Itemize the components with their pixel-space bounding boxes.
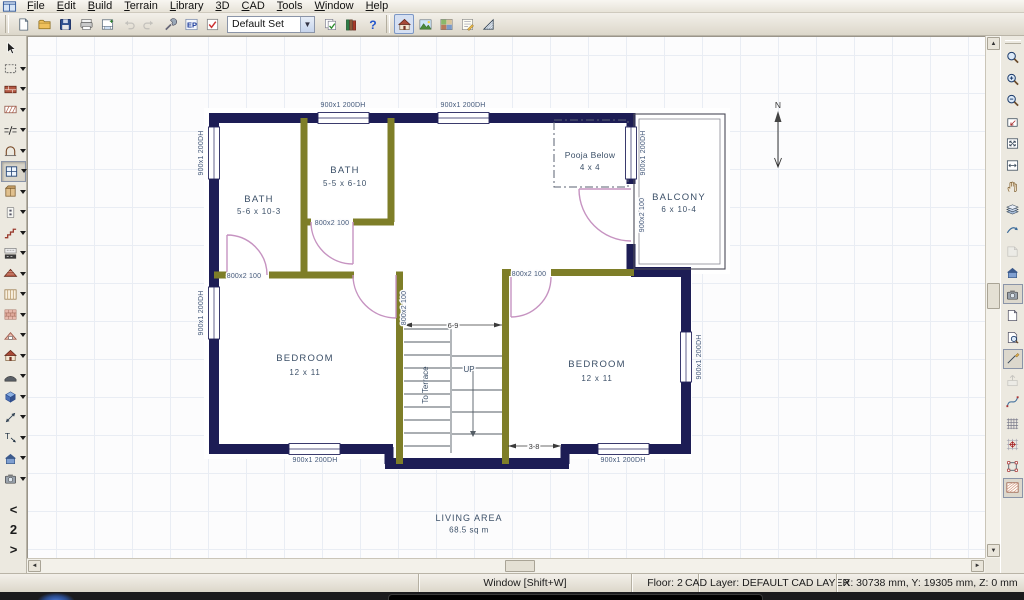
stairs-icon <box>3 225 18 240</box>
swoosh-icon <box>1005 222 1020 237</box>
horizontal-scrollbar[interactable]: ◄ ► <box>27 558 985 573</box>
grid-display-button[interactable] <box>1003 413 1023 433</box>
flyout-arrow-icon[interactable] <box>20 292 26 296</box>
edit-line-button[interactable] <box>1003 349 1023 369</box>
roof-tool[interactable] <box>1 264 26 285</box>
fillwin-icon <box>1005 136 1020 151</box>
svg-text:68.5 sq m: 68.5 sq m <box>449 526 489 535</box>
scroll-right-icon[interactable]: ► <box>971 560 984 572</box>
cursor-coordinates: X: 30738 mm, Y: 19305 mm, Z: 0 mm <box>843 577 1017 589</box>
north-arrow[interactable] <box>775 111 782 167</box>
menu-3d[interactable]: 3D <box>209 0 235 13</box>
drawing-canvas[interactable]: BATH 5-6 x 10-3 BATH 5-5 x 6-10 Pooja Be… <box>27 36 985 558</box>
menu-library[interactable]: Library <box>164 0 210 13</box>
flyout-arrow-icon[interactable] <box>20 374 26 378</box>
viewterrain-icon <box>418 17 433 32</box>
window-icon <box>2 0 17 14</box>
svg-text:BEDROOM: BEDROOM <box>568 359 626 370</box>
open-file-button[interactable] <box>34 14 54 34</box>
layer-display-button[interactable] <box>1003 198 1023 218</box>
new-file-button[interactable] <box>13 14 33 34</box>
swap-views-button[interactable] <box>1003 220 1023 240</box>
undo-icon <box>121 17 136 32</box>
status-bar: Window [Shift+W] Floor: 2 CAD Layer: DEF… <box>0 573 1024 592</box>
electrical-tool[interactable] <box>1 202 26 223</box>
prefcheck-icon <box>205 17 220 32</box>
scroll-up-icon[interactable]: ▲ <box>987 37 1000 50</box>
marquee-select-tool[interactable] <box>1 59 26 80</box>
plancheck-icon <box>100 17 115 32</box>
terrain-view-button[interactable] <box>415 14 435 34</box>
flyout-arrow-icon[interactable] <box>20 231 26 235</box>
svg-text:5-6 x 10-3: 5-6 x 10-3 <box>237 207 281 216</box>
editline-icon <box>1005 351 1020 366</box>
floor-plan-drawing[interactable]: BATH 5-6 x 10-3 BATH 5-5 x 6-10 Pooja Be… <box>1 1 1024 600</box>
system-menu-icon[interactable] <box>2 0 18 12</box>
viewplan-icon <box>397 17 412 32</box>
exterior-wall-tool[interactable] <box>1 79 26 100</box>
svg-text:6 x 10-4: 6 x 10-4 <box>661 205 696 214</box>
dimension-tool[interactable] <box>1 407 26 428</box>
camera-icon <box>3 471 18 486</box>
folder-icon <box>37 17 52 32</box>
svg-text:UP: UP <box>463 365 474 374</box>
svg-text:900x1 200DH: 900x1 200DH <box>600 457 645 464</box>
select-tool[interactable] <box>1 38 26 59</box>
notes-view-button[interactable] <box>457 14 477 34</box>
toolbar-grip[interactable] <box>1005 40 1021 44</box>
svg-text:12 x 11: 12 x 11 <box>289 368 320 377</box>
outlet-icon <box>3 205 18 220</box>
spline-icon <box>1005 394 1020 409</box>
stairs-tool[interactable] <box>1 223 26 244</box>
viewelevation-icon <box>481 17 496 32</box>
dimension-icon <box>3 410 18 425</box>
pan-window-tool[interactable] <box>1003 177 1023 197</box>
svg-text:800x2 100: 800x2 100 <box>315 220 350 227</box>
menu-build[interactable]: Build <box>82 0 118 13</box>
shingles-icon <box>3 307 18 322</box>
flyout-arrow-icon[interactable] <box>20 456 26 460</box>
svg-text:T: T <box>5 431 10 441</box>
magnifier-icon <box>1005 50 1020 65</box>
svg-text:900x2 100: 900x2 100 <box>639 198 646 233</box>
interior-wall-tool[interactable] <box>1 100 26 121</box>
cad-layer-indicator: CAD Layer: DEFAULT CAD LAYER <box>685 577 850 589</box>
menu-window[interactable]: Window <box>308 0 359 13</box>
default-set-combobox[interactable]: Default Set ▼ <box>227 16 315 33</box>
cabinet-tool[interactable] <box>1 182 26 203</box>
gridsnap-icon <box>1005 437 1020 452</box>
dormer-tool[interactable] <box>1 325 26 346</box>
vertical-scroll-thumb[interactable] <box>987 283 1000 309</box>
menu-cad[interactable]: CAD <box>236 0 271 13</box>
current-floor-indicator: 2 <box>3 521 25 538</box>
pan-icon <box>1005 179 1020 194</box>
flyout-arrow-icon[interactable] <box>20 87 26 91</box>
menu-help[interactable]: Help <box>360 0 395 13</box>
flyout-arrow-icon[interactable] <box>20 108 26 112</box>
hatch-tool[interactable] <box>1003 478 1023 498</box>
svg-text:900x1 200DH: 900x1 200DH <box>292 457 337 464</box>
print-button[interactable] <box>76 14 96 34</box>
svg-text:800x2 100: 800x2 100 <box>512 271 547 278</box>
svg-text:800x2 100: 800x2 100 <box>401 291 408 326</box>
svg-text:800x2 100: 800x2 100 <box>227 273 262 280</box>
textarrow-icon: T <box>3 430 18 445</box>
zoomprev-icon <box>1005 115 1020 130</box>
door-tool[interactable] <box>1 141 26 162</box>
svg-text:900x1 200DH: 900x1 200DH <box>696 334 703 379</box>
flyout-arrow-icon[interactable] <box>20 190 26 194</box>
new-window-button[interactable] <box>1003 306 1023 326</box>
tool-hint: Window [Shift+W] <box>483 577 566 589</box>
scroll-down-icon[interactable]: ▼ <box>987 544 1000 557</box>
flyout-arrow-icon[interactable] <box>20 67 26 71</box>
edit-handles-button[interactable] <box>1003 456 1023 476</box>
layers-icon <box>1005 201 1020 216</box>
epicon-icon: EP <box>184 17 199 32</box>
hatchrays-icon <box>1005 480 1020 495</box>
svg-text:To Terrace: To Terrace <box>421 366 430 404</box>
chevron-down-icon[interactable]: ▼ <box>300 17 314 32</box>
svg-text:4 x 4: 4 x 4 <box>580 163 600 172</box>
cabinet-icon <box>3 184 18 199</box>
house-footprint <box>204 108 730 470</box>
flyout-arrow-icon[interactable] <box>20 272 26 276</box>
primitive-box-tool[interactable] <box>1 387 26 408</box>
vectoredit-icon <box>1005 459 1020 474</box>
flyout-arrow-icon[interactable] <box>20 395 26 399</box>
pageturn-icon <box>1005 244 1020 259</box>
taskbar-strip <box>0 592 1024 600</box>
framing-tool[interactable] <box>1 284 26 305</box>
save-icon <box>58 17 73 32</box>
text-callout-tool[interactable]: T <box>1 428 26 449</box>
svg-text:?: ? <box>369 18 376 32</box>
flyout-arrow-icon[interactable] <box>20 333 26 337</box>
zoom-in-button[interactable] <box>1003 69 1023 89</box>
window-tool[interactable] <box>1 161 26 182</box>
menu-edit[interactable]: Edit <box>51 0 82 13</box>
import-button <box>1003 370 1023 390</box>
preferences-button[interactable] <box>202 14 222 34</box>
svg-text:N: N <box>775 100 781 110</box>
floor-up-button[interactable]: > <box>3 541 25 558</box>
housetool-icon <box>3 348 18 363</box>
houseview-icon <box>1005 265 1020 280</box>
menu-terrain[interactable]: Terrain <box>118 0 164 13</box>
svg-text:900x1 200DH: 900x1 200DH <box>640 130 647 175</box>
camera-view-button[interactable] <box>1003 284 1023 304</box>
soffit-tool[interactable] <box>1 366 26 387</box>
fill-window-button[interactable] <box>1003 134 1023 154</box>
magminus-icon <box>1005 93 1020 108</box>
svg-text:LIVING AREA: LIVING AREA <box>435 513 502 523</box>
flyout-arrow-icon[interactable] <box>20 313 26 317</box>
svg-text:900x1 200DH: 900x1 200DH <box>198 290 205 335</box>
vertical-scrollbar[interactable]: ▲ ▼ <box>985 36 1000 558</box>
print-icon <box>79 17 94 32</box>
flyout-arrow-icon[interactable] <box>20 149 26 153</box>
camera-icon <box>1005 287 1020 302</box>
zoom-out-button[interactable] <box>1003 91 1023 111</box>
svg-text:BATH: BATH <box>244 194 273 205</box>
soffit-icon <box>3 369 18 384</box>
materials-view-button[interactable] <box>436 14 456 34</box>
wall-break-tool[interactable] <box>1 120 26 141</box>
svg-text:900x1 200DH: 900x1 200DH <box>198 130 205 175</box>
svg-text:900x1 200DH: 900x1 200DH <box>440 102 485 109</box>
redo-button <box>139 14 159 34</box>
svg-text:EP: EP <box>187 20 197 29</box>
viewmaterials-icon <box>439 17 454 32</box>
zoom-tool[interactable] <box>1003 48 1023 68</box>
fill-window-building-button[interactable] <box>1003 155 1023 175</box>
view-3d-button[interactable] <box>1003 263 1023 283</box>
pagemag-icon <box>1005 330 1020 345</box>
taskbar-tray <box>388 594 763 600</box>
framing-icon <box>3 287 18 302</box>
wrench-icon <box>163 17 178 32</box>
breakwall-icon <box>3 123 18 138</box>
grid-snap-button[interactable] <box>1003 435 1023 455</box>
house-wizard-tool[interactable] <box>1 346 26 367</box>
roof-icon <box>3 266 18 281</box>
undo-button <box>118 14 138 34</box>
fixture-tool[interactable] <box>1 243 26 264</box>
menu-tools[interactable]: Tools <box>271 0 309 13</box>
full-camera-tool[interactable] <box>1 448 26 469</box>
windowtool-icon <box>4 164 19 179</box>
help-button[interactable]: ? <box>362 14 382 34</box>
svg-text:BEDROOM: BEDROOM <box>276 353 334 364</box>
svg-text:3-8: 3-8 <box>529 442 540 451</box>
copy-defaults-button[interactable] <box>320 14 340 34</box>
toolbar-grip[interactable] <box>386 15 390 33</box>
start-button-glow <box>38 593 74 600</box>
plan-view-button[interactable] <box>394 14 414 34</box>
floor-down-button[interactable]: < <box>3 501 25 518</box>
marquee-icon <box>3 61 18 76</box>
wallhatch-icon <box>3 102 18 117</box>
svg-text:5-5 x 6-10: 5-5 x 6-10 <box>323 179 367 188</box>
menu-file[interactable]: File <box>21 0 51 13</box>
flyout-arrow-icon[interactable] <box>20 477 26 481</box>
viewnotes-icon <box>460 17 475 32</box>
svg-text:BATH: BATH <box>330 165 359 176</box>
cube-icon <box>3 389 18 404</box>
pointer-icon <box>3 41 18 56</box>
default-sets-button[interactable]: EP <box>181 14 201 34</box>
library-browser-button[interactable] <box>341 14 361 34</box>
cad-application-window: FileEditBuildTerrainLibrary3DCADToolsWin… <box>0 0 1024 600</box>
page-icon <box>1005 308 1020 323</box>
redo-icon <box>142 17 157 32</box>
svg-text:Pooja Below: Pooja Below <box>565 150 616 160</box>
books-icon <box>344 17 359 32</box>
menu-bar: FileEditBuildTerrainLibrary3DCADToolsWin… <box>0 0 1024 13</box>
flyout-arrow-icon[interactable] <box>20 251 26 255</box>
flyout-arrow-icon[interactable] <box>20 436 26 440</box>
undo-zoom-button[interactable] <box>1003 112 1023 132</box>
view-toolbar <box>1000 36 1024 573</box>
dormer-icon <box>3 328 18 343</box>
copycheck-icon <box>323 17 338 32</box>
flyout-arrow-icon[interactable] <box>20 415 26 419</box>
layout-page-button[interactable] <box>97 14 117 34</box>
default-set-value: Default Set <box>232 18 284 30</box>
elevation-view-button[interactable] <box>478 14 498 34</box>
save-button[interactable] <box>55 14 75 34</box>
importicon-icon <box>1005 373 1020 388</box>
print-preview-button[interactable] <box>1003 327 1023 347</box>
svg-text:6-9: 6-9 <box>448 321 459 330</box>
horizontal-scroll-thumb[interactable] <box>505 560 535 572</box>
helpq-icon: ? <box>365 17 380 32</box>
camera-tool[interactable] <box>1 469 26 490</box>
magplus-icon <box>1005 72 1020 87</box>
svg-text:12 x 11: 12 x 11 <box>581 374 612 383</box>
settings-button[interactable] <box>160 14 180 34</box>
svg-text:BALCONY: BALCONY <box>652 192 706 203</box>
gridicon-icon <box>1005 416 1020 431</box>
floor-material-tool[interactable] <box>1 305 26 326</box>
spline-tool[interactable] <box>1003 392 1023 412</box>
floor-navigation: < 2 > <box>1 501 26 558</box>
floor-indicator: Floor: 2 <box>647 577 683 589</box>
fixturegrid-icon <box>3 246 18 261</box>
flyout-arrow-icon[interactable] <box>20 128 26 132</box>
scroll-left-icon[interactable]: ◄ <box>28 560 41 572</box>
flyout-arrow-icon[interactable] <box>20 354 26 358</box>
newdoc-icon <box>16 17 31 32</box>
flyout-arrow-icon[interactable] <box>21 169 27 173</box>
archdoor-icon <box>3 143 18 158</box>
flyout-arrow-icon[interactable] <box>20 210 26 214</box>
toolbar-grip[interactable] <box>5 15 9 33</box>
main-toolbar: EP Default Set ▼ ? <box>0 13 1024 36</box>
houseview-icon <box>3 451 18 466</box>
build-toolbar: T < 2 > <box>0 36 27 573</box>
wallbrick-icon <box>3 82 18 97</box>
svg-text:900x1 200DH: 900x1 200DH <box>320 102 365 109</box>
fillwin2-icon <box>1005 158 1020 173</box>
page-flip-button <box>1003 241 1023 261</box>
